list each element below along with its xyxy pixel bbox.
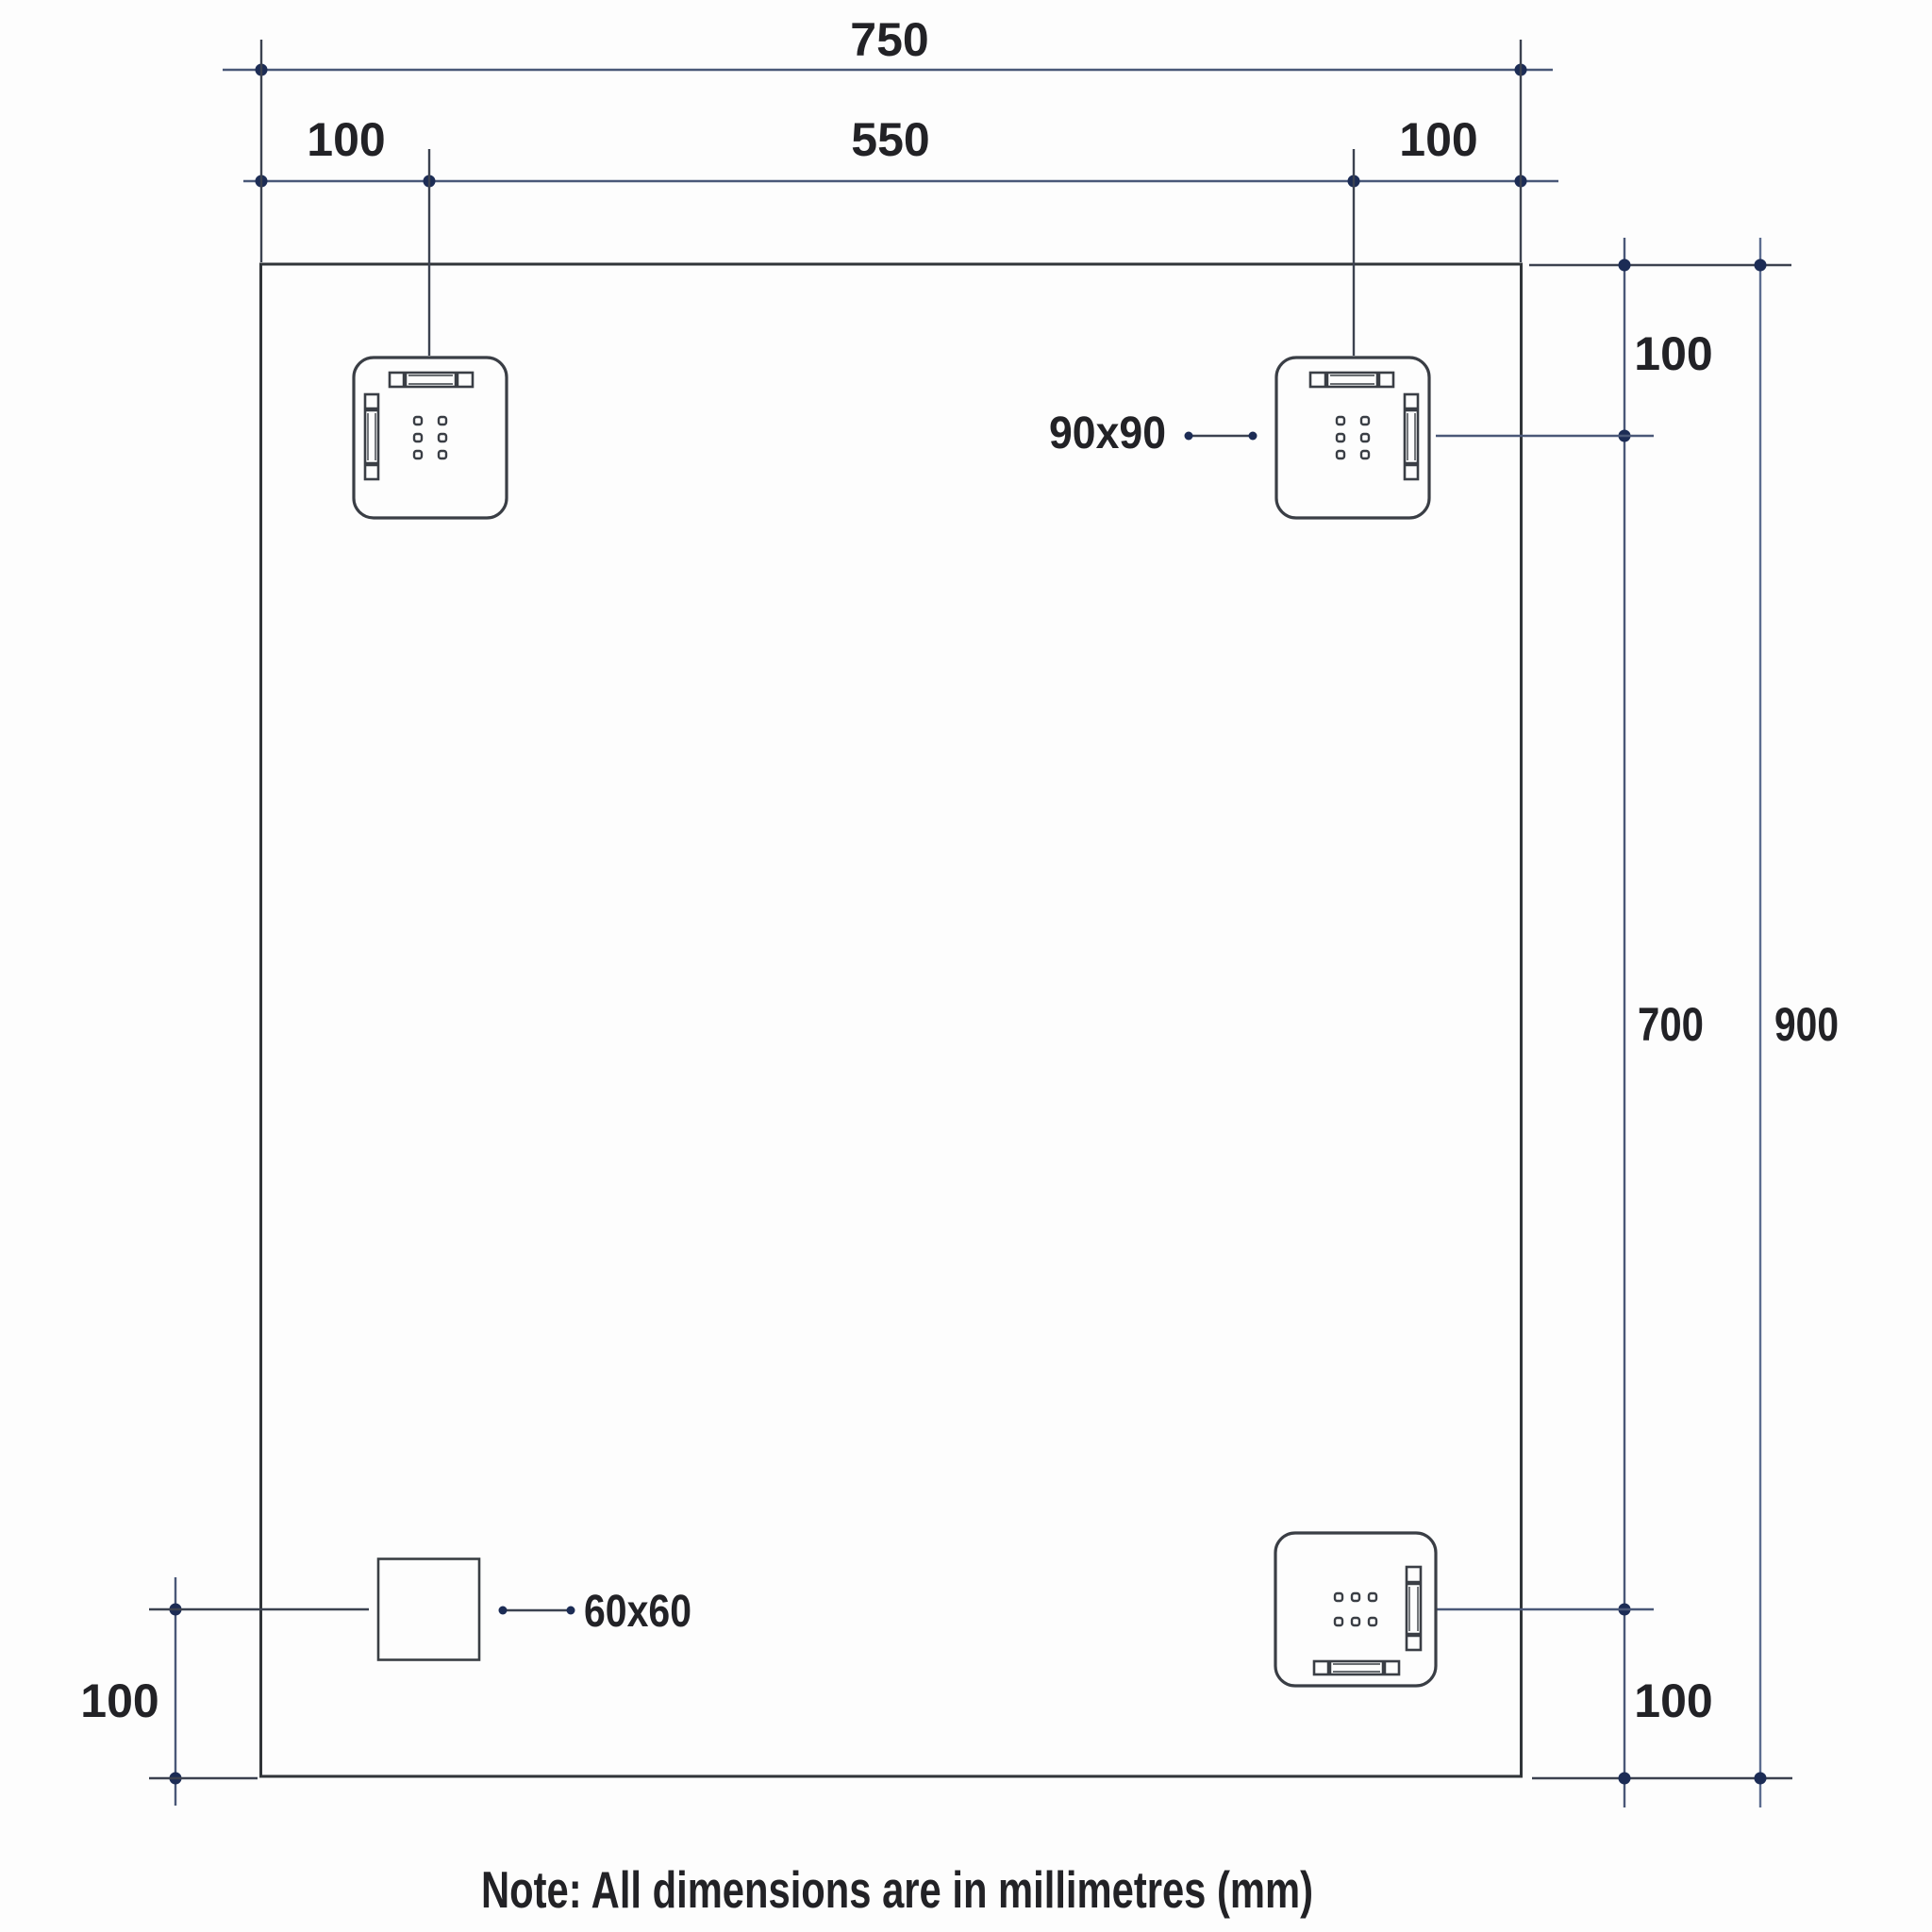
svg-text:700: 700 — [1638, 998, 1704, 1051]
svg-text:100: 100 — [307, 113, 385, 166]
svg-text:750: 750 — [850, 13, 928, 66]
svg-text:90x90: 90x90 — [1049, 408, 1166, 458]
svg-text:100: 100 — [80, 1674, 158, 1727]
svg-text:900: 900 — [1774, 998, 1839, 1051]
svg-text:100: 100 — [1634, 1674, 1712, 1727]
svg-text:100: 100 — [1634, 327, 1712, 380]
svg-text:100: 100 — [1399, 113, 1477, 166]
svg-text:Note: All dimensions are in mi: Note: All dimensions are in millimetres … — [481, 1860, 1313, 1919]
svg-text:60x60: 60x60 — [584, 1587, 691, 1637]
svg-text:550: 550 — [851, 113, 929, 166]
